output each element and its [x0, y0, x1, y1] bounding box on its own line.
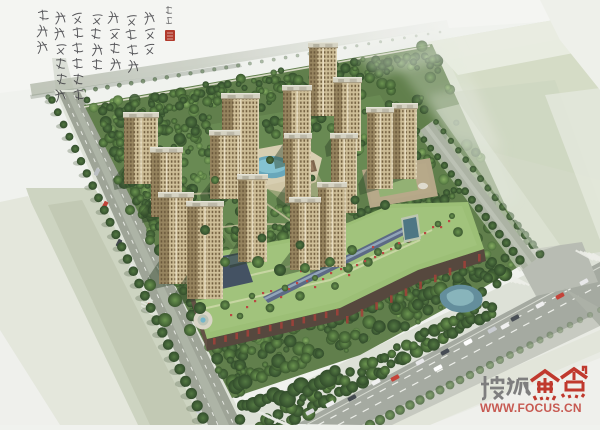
svg-text:WWW.FOCUS.CN: WWW.FOCUS.CN — [480, 401, 582, 415]
